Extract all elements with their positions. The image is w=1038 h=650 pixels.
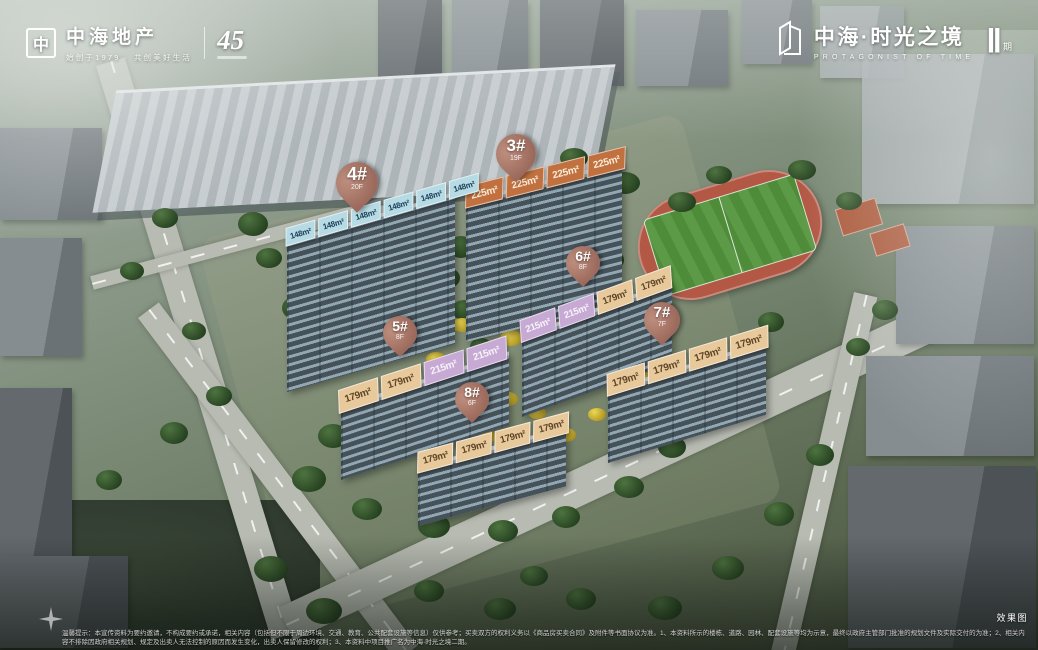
city-building	[0, 388, 72, 556]
yellow-tree	[588, 408, 606, 421]
tree	[806, 444, 834, 466]
building-marker: 6#8F	[566, 246, 600, 290]
tree	[182, 322, 206, 340]
tree	[352, 498, 382, 520]
building-number: 6#	[566, 249, 600, 264]
developer-brand: 中海地产	[66, 22, 192, 49]
marker-label: 8#6F	[455, 385, 489, 408]
building-marker: 8#6F	[455, 382, 489, 426]
building-marker: 5#8F	[383, 316, 417, 360]
city-building	[866, 356, 1034, 456]
anniversary-underline	[217, 56, 247, 59]
project-name: 中海·时光之境	[814, 21, 974, 51]
city-building	[896, 226, 1034, 344]
area-tag-label: 179m²	[460, 439, 488, 456]
area-tag-label: 179m²	[640, 273, 668, 292]
phase-label: 期	[1003, 40, 1012, 53]
tree	[254, 556, 288, 582]
tree	[648, 596, 682, 620]
marker-label: 6#8F	[566, 249, 600, 272]
area-tag-label: 179m²	[611, 370, 640, 389]
area-tag-label: 179m²	[537, 418, 565, 435]
legal-disclaimer: 温馨提示：本宣传资料为要约邀请，不构成要约或承诺，相关内容（包括但不限于周边环境…	[62, 629, 1030, 647]
building-marker: 4#20F	[336, 162, 378, 214]
tree	[484, 598, 516, 620]
tree	[836, 192, 862, 210]
area-tag-label: 179m²	[421, 449, 449, 466]
area-tag-label: 179m²	[652, 358, 681, 377]
area-tag-label: 225m²	[592, 153, 621, 170]
tree	[668, 192, 696, 212]
area-tag-label: 225m²	[551, 164, 580, 181]
tree	[238, 212, 268, 236]
building-marker: 3#19F	[496, 134, 536, 184]
tree	[552, 506, 580, 528]
building-number: 5#	[383, 319, 417, 334]
tree	[306, 598, 342, 624]
tree	[488, 520, 518, 542]
building-marker: 7#7F	[644, 302, 680, 348]
building-floors: 7F	[644, 321, 680, 329]
tree	[152, 208, 178, 228]
building-number: 7#	[644, 305, 680, 321]
anniversary-logo: 45	[217, 27, 247, 59]
area-tag-label: 215m²	[472, 344, 501, 363]
area-tag-label: 148m²	[420, 188, 443, 203]
building-floors: 8F	[383, 334, 417, 342]
tree	[256, 248, 282, 268]
tree	[520, 566, 548, 586]
compass-icon	[38, 606, 64, 637]
area-tag-label: 179m²	[601, 288, 629, 307]
project-name-en: PROTAGONIST OF TIME	[814, 54, 974, 61]
developer-logo-lockup: 中 中海地产 始创于1979 · 共创美好生活 45	[26, 22, 247, 63]
area-tag-label: 179m²	[386, 372, 415, 391]
tree	[120, 262, 144, 280]
tree	[712, 556, 744, 580]
area-tag-label: 179m²	[693, 345, 722, 364]
developer-logo-icon: 中	[26, 28, 56, 58]
render-note: 效果图	[996, 611, 1028, 624]
city-building	[0, 238, 82, 356]
tree	[96, 470, 122, 490]
building-number: 8#	[455, 385, 489, 400]
phase-badge: Ⅱ 期	[986, 26, 1012, 56]
area-tag-label: 215m²	[524, 316, 552, 335]
area-tag-label: 148m²	[289, 226, 312, 241]
area-tag-label: 179m²	[498, 429, 526, 446]
tree	[846, 338, 870, 356]
tree	[292, 466, 326, 492]
city-building	[862, 54, 1034, 204]
project-logo-lockup: 中海·时光之境 PROTAGONIST OF TIME Ⅱ 期	[774, 20, 1012, 61]
building-number: 3#	[496, 137, 536, 155]
tree	[614, 476, 644, 498]
area-tag-label: 215m²	[429, 358, 458, 377]
tree	[566, 588, 596, 610]
area-tag-label: 148m²	[321, 216, 344, 231]
marker-label: 7#7F	[644, 305, 680, 329]
area-tag-label: 148m²	[387, 198, 410, 213]
marker-label: 4#20F	[336, 165, 378, 192]
building-floors: 8F	[566, 264, 600, 272]
area-tag-label: 179m²	[735, 333, 764, 352]
tree	[206, 386, 232, 406]
project-logo-icon	[774, 20, 804, 61]
tree	[160, 422, 188, 444]
aerial-render-poster: 225m²225m²225m²225m²3#19F148m²148m²148m²…	[0, 0, 1038, 650]
area-tag-label: 215m²	[563, 302, 591, 321]
building-floors: 19F	[496, 155, 536, 163]
marker-label: 5#8F	[383, 319, 417, 342]
phase-numeral: Ⅱ	[986, 26, 1002, 56]
developer-tagline: 始创于1979 · 共创美好生活	[66, 52, 192, 63]
area-tag-label: 179m²	[344, 386, 373, 405]
tree	[872, 300, 898, 320]
building-number: 4#	[336, 165, 378, 184]
tree	[788, 160, 816, 180]
city-building	[0, 128, 102, 220]
tree	[764, 502, 794, 526]
header-divider	[204, 27, 205, 59]
anniversary-number: 45	[217, 27, 247, 53]
building-floors: 20F	[336, 184, 378, 192]
tree	[706, 166, 732, 184]
building-floors: 6F	[455, 400, 489, 408]
area-tag-label: 148m²	[452, 179, 475, 194]
city-building	[636, 10, 728, 86]
marker-label: 3#19F	[496, 137, 536, 163]
tree	[414, 580, 444, 602]
